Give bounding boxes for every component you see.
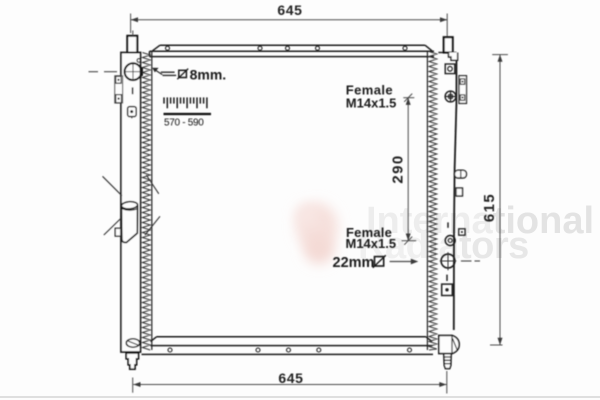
svg-text:M14x1.5: M14x1.5 [346,236,397,251]
svg-text:645: 645 [277,2,302,18]
svg-text:570 - 590: 570 - 590 [164,118,204,129]
svg-text:8mm.: 8mm. [190,66,227,82]
svg-text:615: 615 [481,193,498,222]
svg-text:290: 290 [389,154,406,183]
svg-text:22mm: 22mm [333,255,375,271]
svg-text:645: 645 [278,370,303,386]
svg-text:M14x1.5: M14x1.5 [346,96,397,111]
